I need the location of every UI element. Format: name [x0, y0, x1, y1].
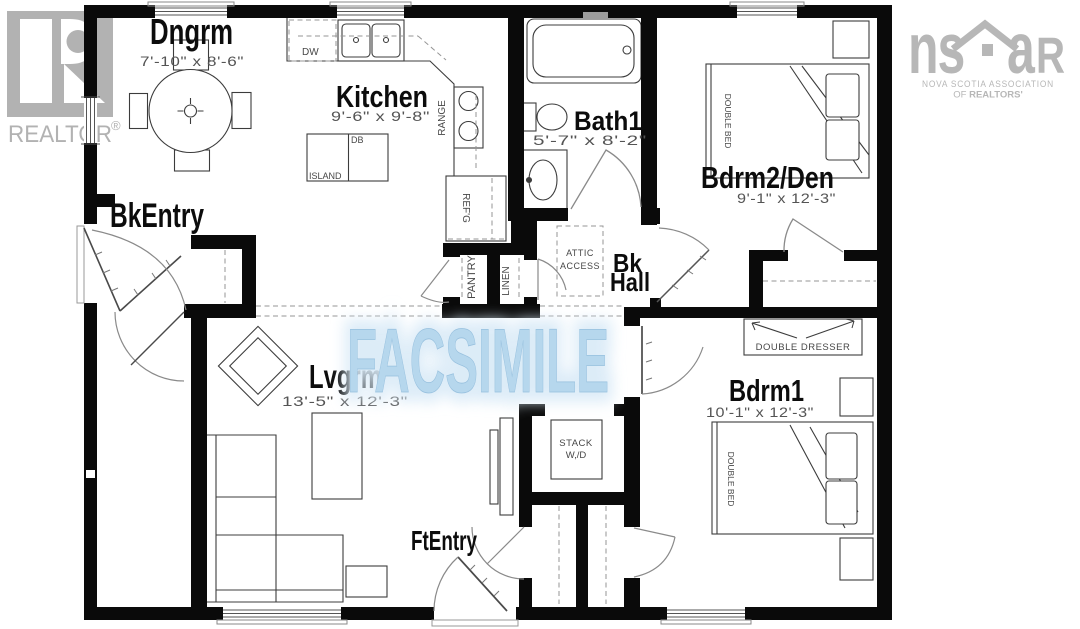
- svg-text:DW: DW: [302, 47, 319, 58]
- svg-text:ATTIC: ATTIC: [566, 248, 594, 258]
- svg-text:DOUBLE BED: DOUBLE BED: [723, 94, 733, 149]
- svg-text:BkEntry: BkEntry: [110, 197, 204, 235]
- svg-text:STACK: STACK: [559, 438, 593, 449]
- svg-text:DOUBLE DRESSER: DOUBLE DRESSER: [756, 342, 851, 353]
- svg-text:®: ®: [111, 118, 121, 133]
- svg-text:OF REALTORS': OF REALTORS': [953, 90, 1022, 101]
- svg-text:ACCESS: ACCESS: [560, 261, 600, 271]
- svg-text:PANTRY: PANTRY: [466, 255, 478, 299]
- svg-text:W,/D: W,/D: [566, 450, 587, 461]
- svg-text:a: a: [1007, 9, 1035, 89]
- svg-text:RANGE: RANGE: [437, 100, 448, 136]
- svg-text:7'-10" x 8'-6": 7'-10" x 8'-6": [140, 53, 244, 69]
- svg-text:FACSIMILE: FACSIMILE: [347, 311, 609, 412]
- svg-text:5'-7" x 8'-2": 5'-7" x 8'-2": [533, 132, 647, 148]
- svg-text:FtEntry: FtEntry: [411, 525, 477, 556]
- svg-text:ISLAND: ISLAND: [309, 171, 342, 181]
- svg-text:DB: DB: [351, 135, 364, 145]
- svg-text:LINEN: LINEN: [501, 266, 512, 295]
- svg-text:9'-6" x 9'-8": 9'-6" x 9'-8": [331, 108, 430, 124]
- svg-text:NOVA SCOTIA ASSOCIATION: NOVA SCOTIA ASSOCIATION: [922, 79, 1054, 90]
- svg-text:R: R: [1036, 27, 1065, 84]
- svg-text:REF'G: REF'G: [460, 193, 471, 223]
- svg-text:Dngrm: Dngrm: [150, 11, 233, 52]
- svg-text:Bdrm1: Bdrm1: [729, 373, 804, 408]
- svg-text:10'-1" x 12'-3": 10'-1" x 12'-3": [706, 404, 814, 420]
- svg-text:Hall: Hall: [610, 267, 650, 297]
- svg-text:9'-1" x 12'-3": 9'-1" x 12'-3": [737, 190, 836, 206]
- svg-text:DOUBLE BED: DOUBLE BED: [726, 452, 736, 507]
